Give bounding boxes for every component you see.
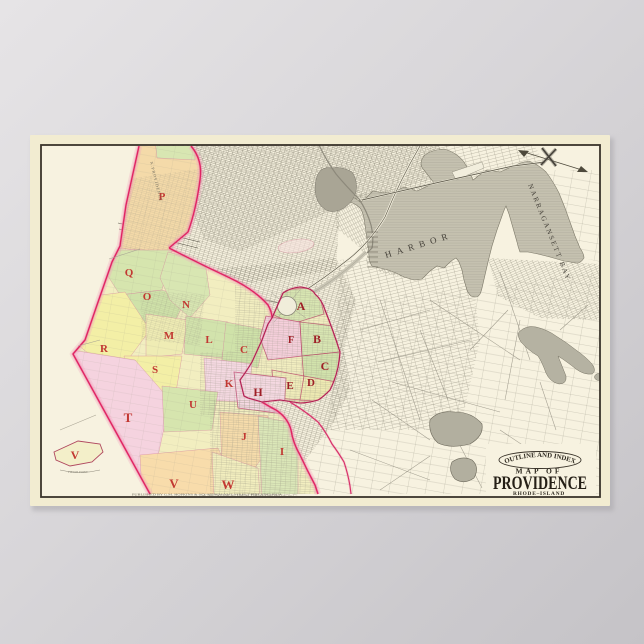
svg-text:U: U <box>189 399 197 411</box>
svg-text:M: M <box>164 330 175 342</box>
svg-text:Q: Q <box>125 267 134 279</box>
svg-text:H: H <box>253 385 263 399</box>
svg-text:S: S <box>152 364 158 376</box>
svg-text:B: B <box>313 332 321 346</box>
svg-text:R: R <box>100 343 109 355</box>
svg-text:J: J <box>241 431 247 443</box>
svg-text:I: I <box>280 446 284 458</box>
svg-text:A: A <box>297 299 306 313</box>
svg-text:O: O <box>143 291 152 303</box>
svg-text:PUBLISHED BY G.M. HOPKINS & CO: PUBLISHED BY G.M. HOPKINS & CO. 320 WALN… <box>132 493 283 497</box>
svg-text:W: W <box>222 477 235 492</box>
svg-text:V: V <box>169 476 179 491</box>
svg-text:T: T <box>124 410 133 425</box>
svg-text:F: F <box>288 335 294 346</box>
svg-text:FIELDS POINT: FIELDS POINT <box>68 470 88 474</box>
svg-text:C: C <box>321 359 330 373</box>
svg-text:D: D <box>307 377 315 389</box>
svg-text:C: C <box>240 344 248 356</box>
svg-text:E: E <box>286 380 293 392</box>
svg-text:K: K <box>225 378 234 390</box>
svg-text:N: N <box>182 299 190 311</box>
svg-text:V: V <box>71 448 80 462</box>
svg-text:L: L <box>205 334 212 346</box>
